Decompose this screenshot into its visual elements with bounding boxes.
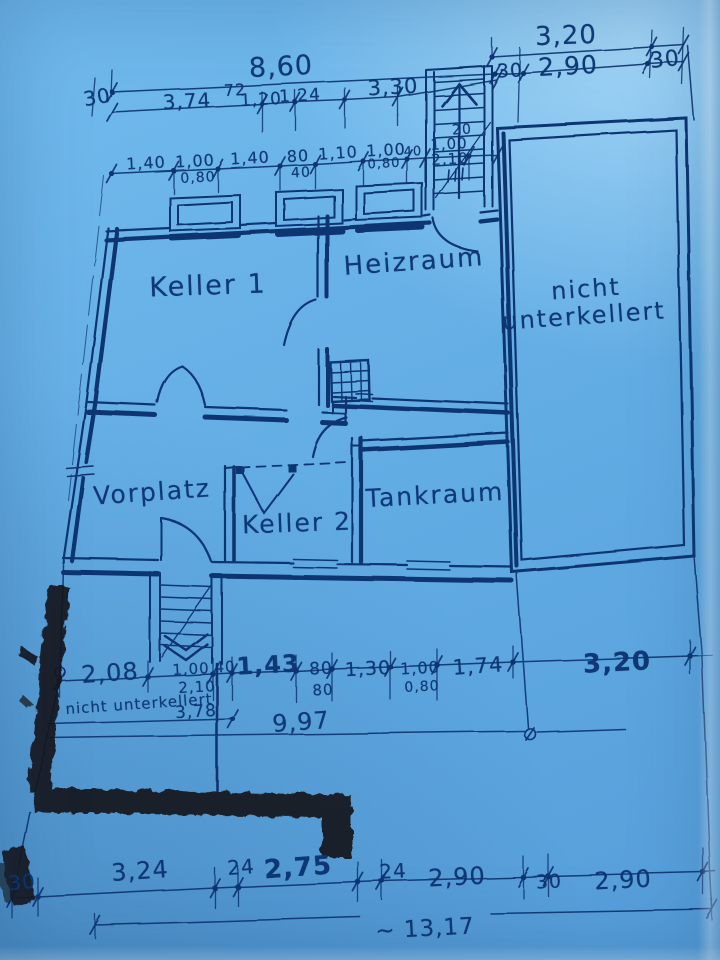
dim-label: 3,74	[162, 88, 212, 115]
room-label-heizraum: Heizraum	[343, 242, 486, 282]
dim-label: 1,24	[279, 85, 322, 107]
dim-label: 3,20	[582, 646, 652, 680]
room-label-keller2: Keller 2	[242, 507, 353, 540]
dim-label: 24	[226, 854, 255, 880]
dim-label: 40	[214, 657, 236, 676]
blueprint-photo: Keller 1 Heizraum nicht unterkellert Vor…	[0, 0, 720, 960]
room-label-vorplatz: Vorplatz	[92, 473, 212, 510]
dim-label: 24	[379, 858, 408, 883]
dim-label: 0,80	[367, 156, 401, 173]
dim-label: 1,74	[452, 652, 504, 679]
dim-label: 1,43	[236, 649, 301, 680]
dim-label: 3,24	[110, 855, 169, 887]
dim-label: 3,78	[175, 701, 218, 723]
dim-label: 2,90	[594, 865, 653, 896]
dim-label: 2,10	[178, 677, 216, 697]
dim-label: 80	[286, 146, 309, 166]
room-label-nicht-unterkellert-line2: unterkellert	[501, 296, 666, 335]
dim-label: 3,30	[367, 74, 419, 101]
dim-label: 1,40	[230, 147, 271, 168]
dim-label: 40	[291, 164, 312, 181]
dim-label: 0,80	[180, 169, 216, 187]
dim-label: 30	[496, 59, 523, 82]
dim-label: 2,90	[428, 862, 487, 893]
dim-label: 0,80	[404, 678, 440, 696]
dim-label: 1,30	[344, 657, 391, 681]
dim-label: 2,08	[80, 657, 139, 689]
dim-label: 80	[312, 680, 334, 699]
dim-label: 2,90	[537, 50, 598, 82]
dim-label: 30	[81, 83, 112, 111]
dim-label: 1,40	[126, 152, 167, 173]
dim-label: 1,00	[400, 657, 441, 678]
dim-label: 1,20	[240, 89, 283, 111]
dim-label: 8,60	[248, 50, 314, 84]
dim-label: 2,75	[263, 851, 333, 886]
labels-layer: Keller 1 Heizraum nicht unterkellert Vor…	[0, 0, 720, 960]
dim-label: 9,97	[271, 706, 330, 738]
dim-label: 1,10	[318, 142, 359, 164]
dim-label: 80	[309, 658, 334, 679]
dim-label: 30	[7, 869, 37, 896]
room-label-keller1: Keller 1	[149, 268, 267, 303]
dim-label: 30	[649, 46, 681, 74]
dim-label: 3,20	[535, 20, 598, 52]
dim-label: 2,10	[431, 149, 469, 169]
dim-label-total: ~ 13,17	[375, 913, 476, 944]
dim-label: 40	[403, 144, 422, 160]
dim-label: 1,00	[172, 659, 210, 679]
dim-label: 30	[535, 870, 562, 893]
room-label-tankraum: Tankraum	[365, 477, 505, 513]
